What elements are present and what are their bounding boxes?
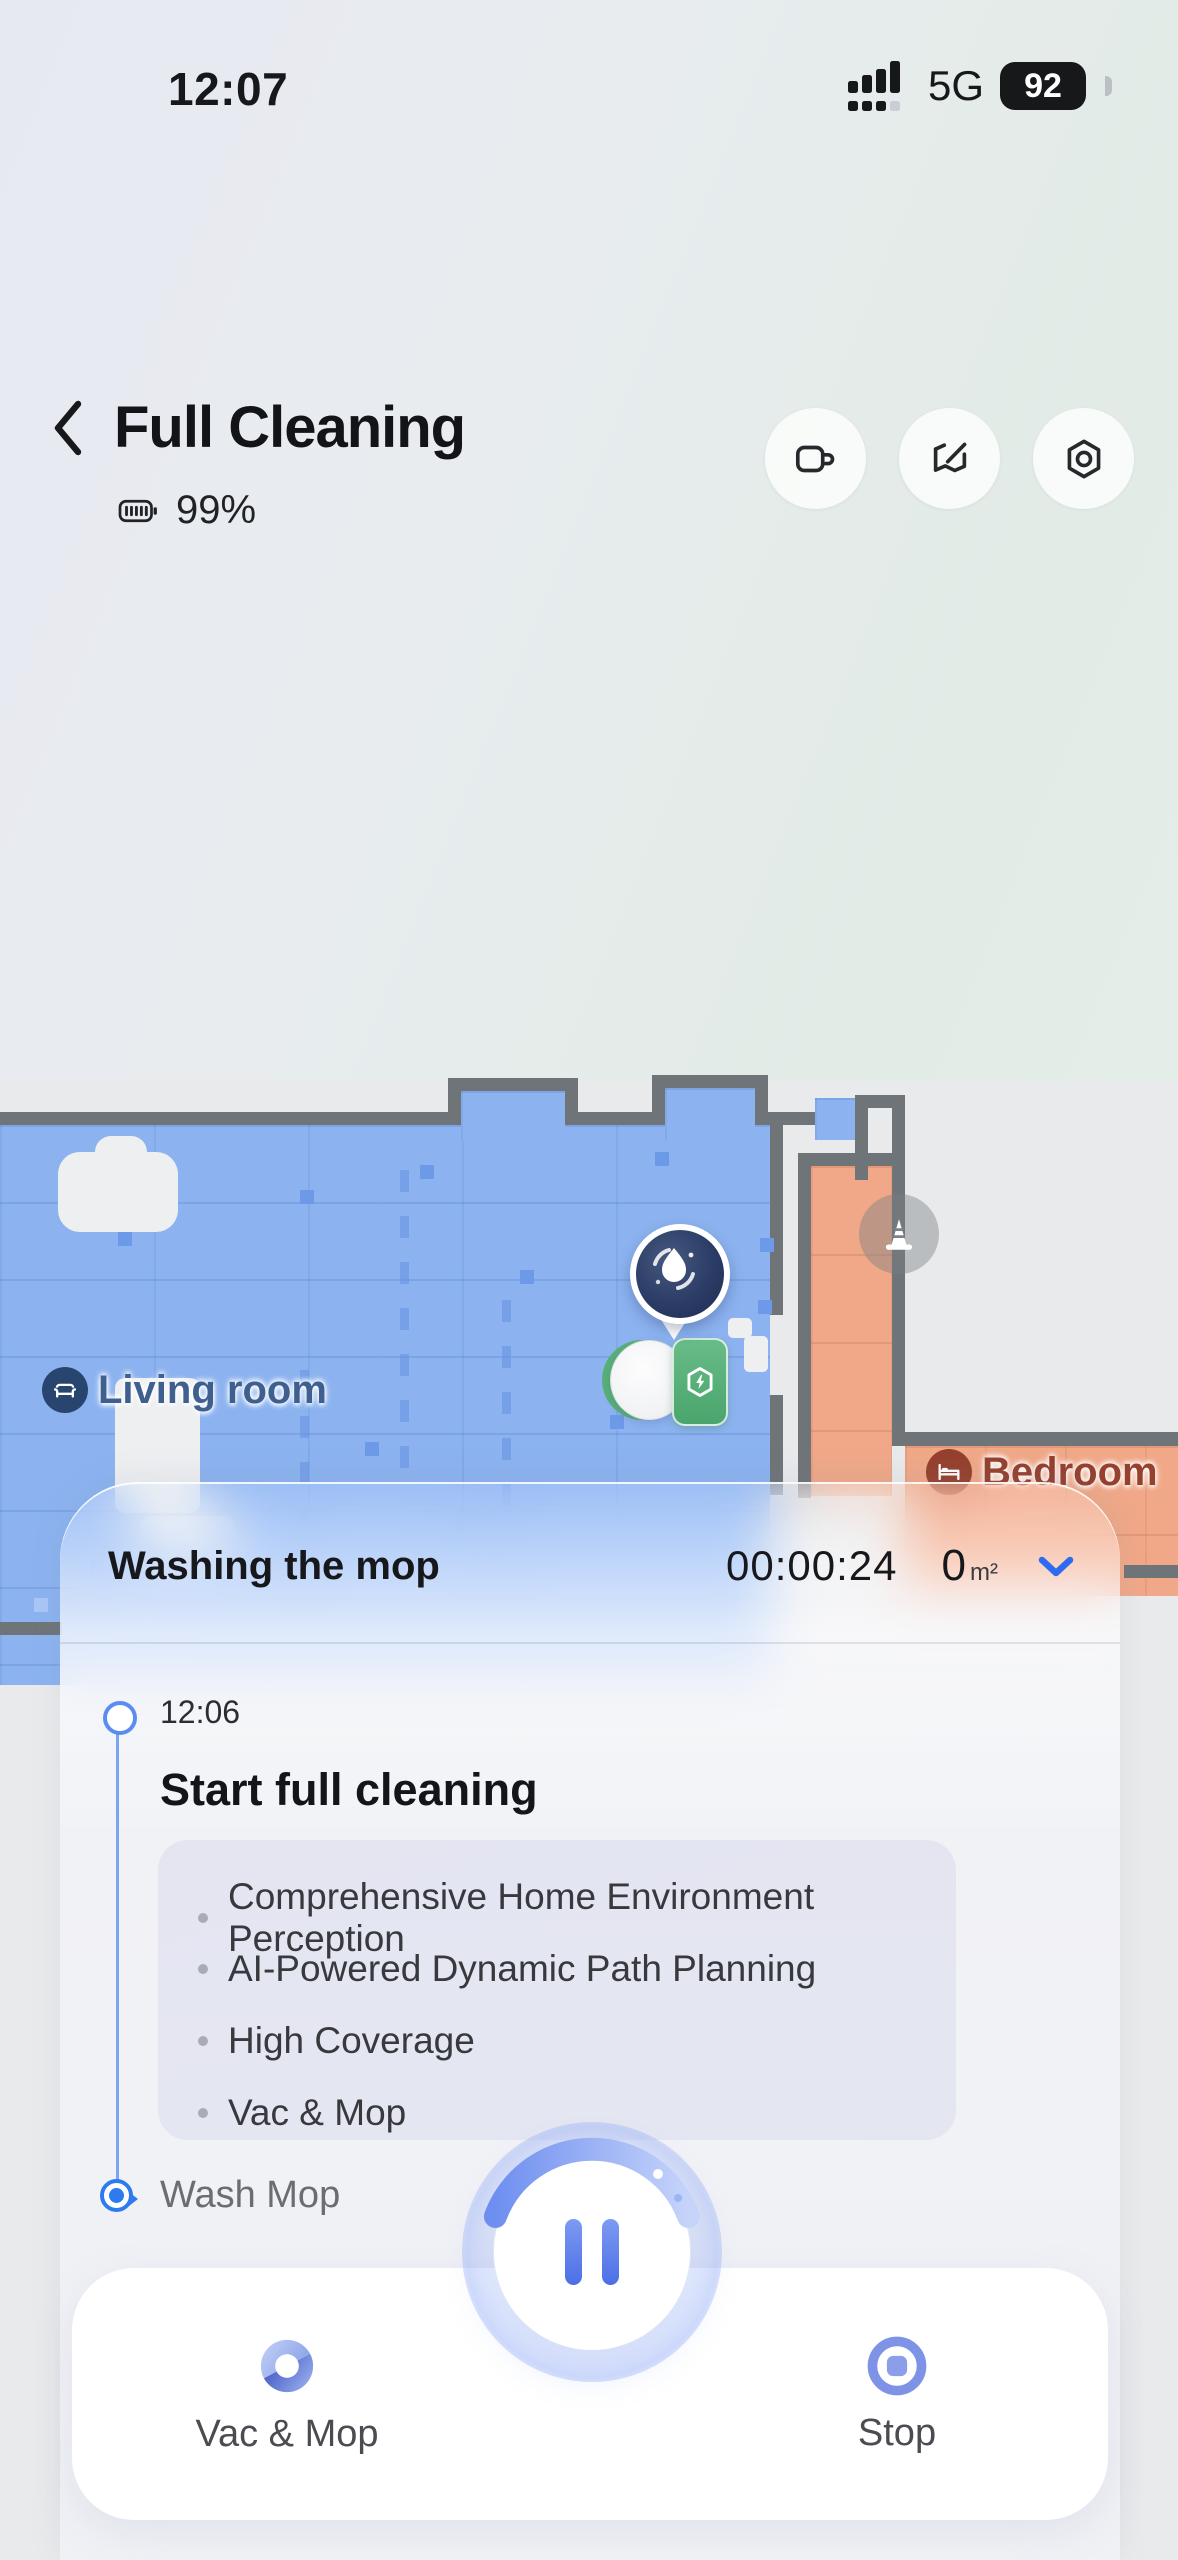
- page-header: Full Cleaning 99%: [0, 190, 1178, 380]
- dock-marker: [672, 1338, 728, 1426]
- map-edit-icon: [927, 436, 973, 482]
- robot-battery-icon: [118, 499, 158, 523]
- status-bar: 12:07 5G 92: [0, 0, 1178, 140]
- settings-icon: [1061, 436, 1107, 482]
- panel-header: Washing the mop 00:00:24 0 m²: [108, 1534, 1076, 1598]
- timeline-start-time: 12:06: [160, 1694, 240, 1731]
- pause-icon: [565, 2219, 582, 2285]
- edit-map-button[interactable]: [899, 408, 1000, 509]
- cleaned-area-value: 0: [942, 1541, 966, 1591]
- dock-hexagon-bolt-icon: [681, 1363, 719, 1401]
- stop-button[interactable]: Stop: [747, 2268, 1047, 2520]
- back-button[interactable]: [44, 396, 92, 460]
- timeline-node-current: [100, 2179, 133, 2212]
- cleaning-status-panel: Washing the mop 00:00:24 0 m² 12:06 Star…: [60, 1482, 1120, 2560]
- living-room-label[interactable]: Living room: [42, 1367, 327, 1413]
- app-screen: 12:07 5G 92 Full Cleaning: [0, 0, 1178, 2560]
- robot-battery-status: 99%: [118, 488, 256, 533]
- cleaning-features-card: Comprehensive Home Environment Perceptio…: [158, 1840, 956, 2140]
- divider: [60, 1642, 1120, 1644]
- timeline-current-title: Wash Mop: [160, 2174, 340, 2217]
- pause-button[interactable]: [494, 2154, 690, 2350]
- robot-position-marker: [630, 1224, 730, 1324]
- obstacle-cone-marker: [859, 1194, 939, 1274]
- vac-mop-label: Vac & Mop: [195, 2413, 378, 2456]
- stop-label: Stop: [858, 2412, 936, 2455]
- chevron-down-icon: [1036, 1552, 1076, 1580]
- collapse-panel-button[interactable]: [1036, 1552, 1076, 1580]
- vac-mop-mode-button[interactable]: Vac & Mop: [137, 2268, 437, 2520]
- feature-item: High Coverage: [158, 2020, 956, 2062]
- bullet-dot: [198, 2108, 208, 2118]
- robot-swirl-icon: [630, 1224, 718, 1312]
- feature-item: AI-Powered Dynamic Path Planning: [158, 1948, 956, 1990]
- cleaning-status-text: Washing the mop: [108, 1544, 440, 1589]
- phone-battery-percent: 92: [1024, 67, 1062, 106]
- page-title: Full Cleaning: [114, 394, 465, 461]
- settings-button[interactable]: [1033, 408, 1134, 509]
- video-camera-icon: [793, 436, 839, 482]
- bullet-dot: [198, 2036, 208, 2046]
- background-gradient: [0, 0, 1178, 1080]
- bullet-dot: [198, 1964, 208, 1974]
- sofa-icon: [42, 1367, 88, 1413]
- timeline-node-start: [103, 1701, 137, 1735]
- cleaned-area-unit: m²: [970, 1559, 998, 1587]
- phone-battery-indicator: 92: [1000, 62, 1086, 110]
- timeline-rail: [116, 1730, 119, 2182]
- chevron-left-icon: [44, 396, 92, 460]
- network-type: 5G: [928, 62, 984, 110]
- elapsed-time: 00:00:24: [726, 1542, 898, 1590]
- timeline-start-title: Start full cleaning: [160, 1764, 538, 1816]
- vac-mop-swirl-icon: [254, 2333, 320, 2399]
- traffic-cone-icon: [878, 1213, 920, 1255]
- battery-tip: [1105, 76, 1112, 96]
- signal-strength-icon: [848, 61, 912, 111]
- robot-battery-percent: 99%: [176, 488, 256, 533]
- clock: 12:07: [168, 62, 288, 116]
- camera-button[interactable]: [765, 408, 866, 509]
- cleaned-area: 0 m²: [942, 1541, 998, 1591]
- stop-icon: [865, 2334, 929, 2398]
- bullet-dot: [198, 1913, 208, 1923]
